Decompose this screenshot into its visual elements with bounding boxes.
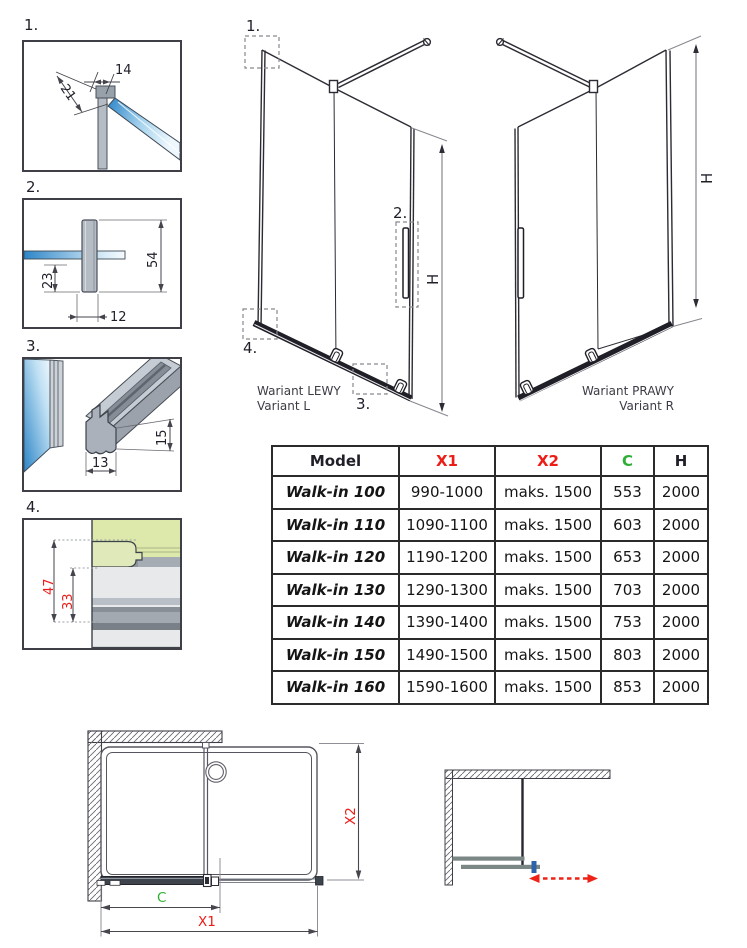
cell-model: Walk-in 150: [272, 639, 399, 672]
door-handle: [518, 228, 524, 298]
sliding-door-bar: [461, 865, 540, 869]
variant-drawings: 1. 2. 3. 4. H Wariant LEWY Variant L: [232, 8, 740, 432]
spec-table: Model X1 X2 C H Walk-in 100 990-1000 mak…: [271, 445, 709, 705]
table-row: Walk-in 130 1290-1300 maks. 1500 703 200…: [272, 574, 708, 607]
detail-1-box: 14 21: [22, 40, 182, 172]
cell-h: 2000: [654, 476, 708, 509]
table-row: Walk-in 150 1490-1500 maks. 1500 803 200…: [272, 639, 708, 672]
table-row: Walk-in 100 990-1000 maks. 1500 553 2000: [272, 476, 708, 509]
dim-label-21: 21: [57, 82, 79, 104]
cell-x1: 1390-1400: [399, 606, 495, 639]
slide-direction-arrow: [529, 874, 598, 883]
cell-c: 603: [601, 509, 654, 542]
cell-model: Walk-in 100: [272, 476, 399, 509]
cell-x2: maks. 1500: [495, 639, 601, 672]
variant-right-drawing: [497, 36, 702, 401]
c-dim-label: C: [157, 890, 166, 906]
cell-h: 2000: [654, 639, 708, 672]
slide-schematic-drawing: [425, 748, 640, 908]
plan-view-drawing: X2 C X1: [58, 720, 380, 948]
x1-dim-label: X1: [198, 914, 216, 930]
callout-2-label: 2.: [393, 204, 407, 222]
door-handle: [403, 228, 409, 298]
cell-c: 653: [601, 541, 654, 574]
detail-2-number: 2.: [26, 178, 40, 196]
table-row: Walk-in 120 1190-1200 maks. 1500 653 200…: [272, 541, 708, 574]
variant-left-drawing: [243, 36, 448, 416]
height-dimension: [410, 128, 448, 416]
callout-3-label: 3.: [356, 395, 370, 413]
callout-1-label: 1.: [246, 17, 260, 35]
cell-c: 803: [601, 639, 654, 672]
cell-x1: 990-1000: [399, 476, 495, 509]
cell-h: 2000: [654, 509, 708, 542]
detail-1-drawing: 14 21: [24, 42, 180, 170]
dim-label-23: 23: [41, 272, 56, 289]
dimension-12: [68, 294, 107, 322]
detail-3-number: 3.: [26, 337, 40, 355]
cell-x1: 1190-1200: [399, 541, 495, 574]
cell-x1: 1490-1500: [399, 639, 495, 672]
dim-label-12: 12: [110, 310, 127, 325]
cell-h: 2000: [654, 574, 708, 607]
header-h: H: [654, 446, 708, 476]
cell-x2: maks. 1500: [495, 541, 601, 574]
header-x1: X1: [399, 446, 495, 476]
cell-c: 553: [601, 476, 654, 509]
cell-h: 2000: [654, 671, 708, 704]
table-row: Walk-in 140 1390-1400 maks. 1500 753 200…: [272, 606, 708, 639]
cell-model: Walk-in 140: [272, 606, 399, 639]
detail-4-box: 47 33: [22, 518, 182, 650]
header-c: C: [601, 446, 654, 476]
cell-h: 2000: [654, 541, 708, 574]
detail-2-box: 54 23 12: [22, 198, 182, 329]
cell-c: 753: [601, 606, 654, 639]
cell-x2: maks. 1500: [495, 671, 601, 704]
variant-left-title: Wariant LEWY: [257, 384, 341, 398]
support-bar: [497, 39, 598, 93]
handle-marker: [532, 861, 537, 873]
table-header-row: Model X1 X2 C H: [272, 446, 708, 476]
dim-label-33: 33: [61, 593, 76, 610]
wall-profile: [96, 86, 115, 169]
variant-right-subtitle: Variant R: [619, 399, 674, 413]
cell-model: Walk-in 130: [272, 574, 399, 607]
cell-x1: 1290-1300: [399, 574, 495, 607]
detail-3-box: 15 13: [22, 357, 182, 492]
dim-label-15: 15: [155, 429, 170, 446]
cell-model: Walk-in 120: [272, 541, 399, 574]
fixed-panel-bar: [453, 857, 525, 861]
header-x2: X2: [495, 446, 601, 476]
dim-label-14: 14: [115, 63, 132, 78]
dim-label-13: 13: [92, 456, 109, 471]
cell-x2: maks. 1500: [495, 509, 601, 542]
glass-panel: [108, 98, 180, 160]
glass-panel: [24, 251, 125, 259]
detail-2-drawing: 54 23 12: [24, 200, 180, 327]
height-label-right: H: [698, 173, 716, 184]
cell-x1: 1590-1600: [399, 671, 495, 704]
detail-4-number: 4.: [26, 498, 40, 516]
cell-x1: 1090-1100: [399, 509, 495, 542]
detail-3-drawing: 15 13: [24, 359, 180, 490]
glass-panel: [24, 359, 63, 472]
cell-c: 703: [601, 574, 654, 607]
drain-circle: [206, 762, 226, 782]
dim-label-47: 47: [42, 578, 57, 595]
callout-4-label: 4.: [243, 339, 257, 357]
support-bar: [330, 39, 431, 93]
table-row: Walk-in 160 1590-1600 maks. 1500 853 200…: [272, 671, 708, 704]
height-label-left: H: [424, 274, 442, 285]
cell-x2: maks. 1500: [495, 606, 601, 639]
detail-1-number: 1.: [24, 16, 38, 34]
cell-h: 2000: [654, 606, 708, 639]
detail-4-drawing: 47 33: [24, 520, 180, 648]
header-model: Model: [272, 446, 399, 476]
profile-section: [92, 520, 180, 648]
cell-x2: maks. 1500: [495, 574, 601, 607]
shower-walkin-spec-sheet: { "details": { "d1": {"num": "1.", "dim_…: [0, 0, 747, 948]
dim-label-54: 54: [146, 251, 161, 268]
cell-model: Walk-in 110: [272, 509, 399, 542]
cell-model: Walk-in 160: [272, 671, 399, 704]
variant-left-subtitle: Variant L: [257, 399, 310, 413]
variant-right-title: Wariant PRAWY: [582, 384, 675, 398]
x2-dim-label: X2: [343, 807, 359, 825]
cell-c: 853: [601, 671, 654, 704]
table-row: Walk-in 110 1090-1100 maks. 1500 603 200…: [272, 509, 708, 542]
cell-x2: maks. 1500: [495, 476, 601, 509]
handle-bar: [82, 220, 97, 292]
